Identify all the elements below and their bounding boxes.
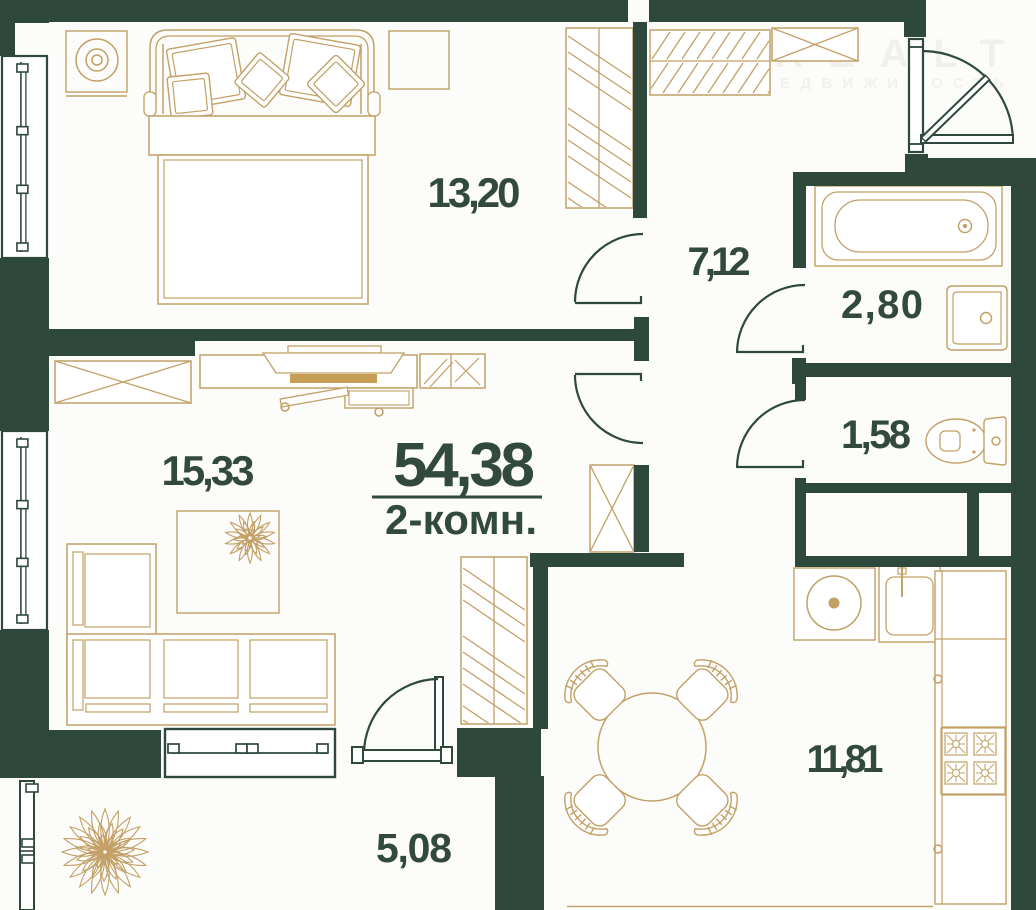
svg-text:7,12: 7,12 [688, 240, 751, 284]
svg-text:2-комн.: 2-комн. [385, 496, 537, 543]
svg-text:13,20: 13,20 [428, 169, 521, 216]
svg-text:11,81: 11,81 [807, 738, 884, 781]
svg-text:15,33: 15,33 [162, 447, 255, 494]
svg-text:2,80: 2,80 [841, 283, 923, 327]
svg-text:5,08: 5,08 [376, 825, 452, 871]
svg-text:1,58: 1,58 [841, 413, 911, 457]
svg-text:54,38: 54,38 [393, 431, 535, 500]
